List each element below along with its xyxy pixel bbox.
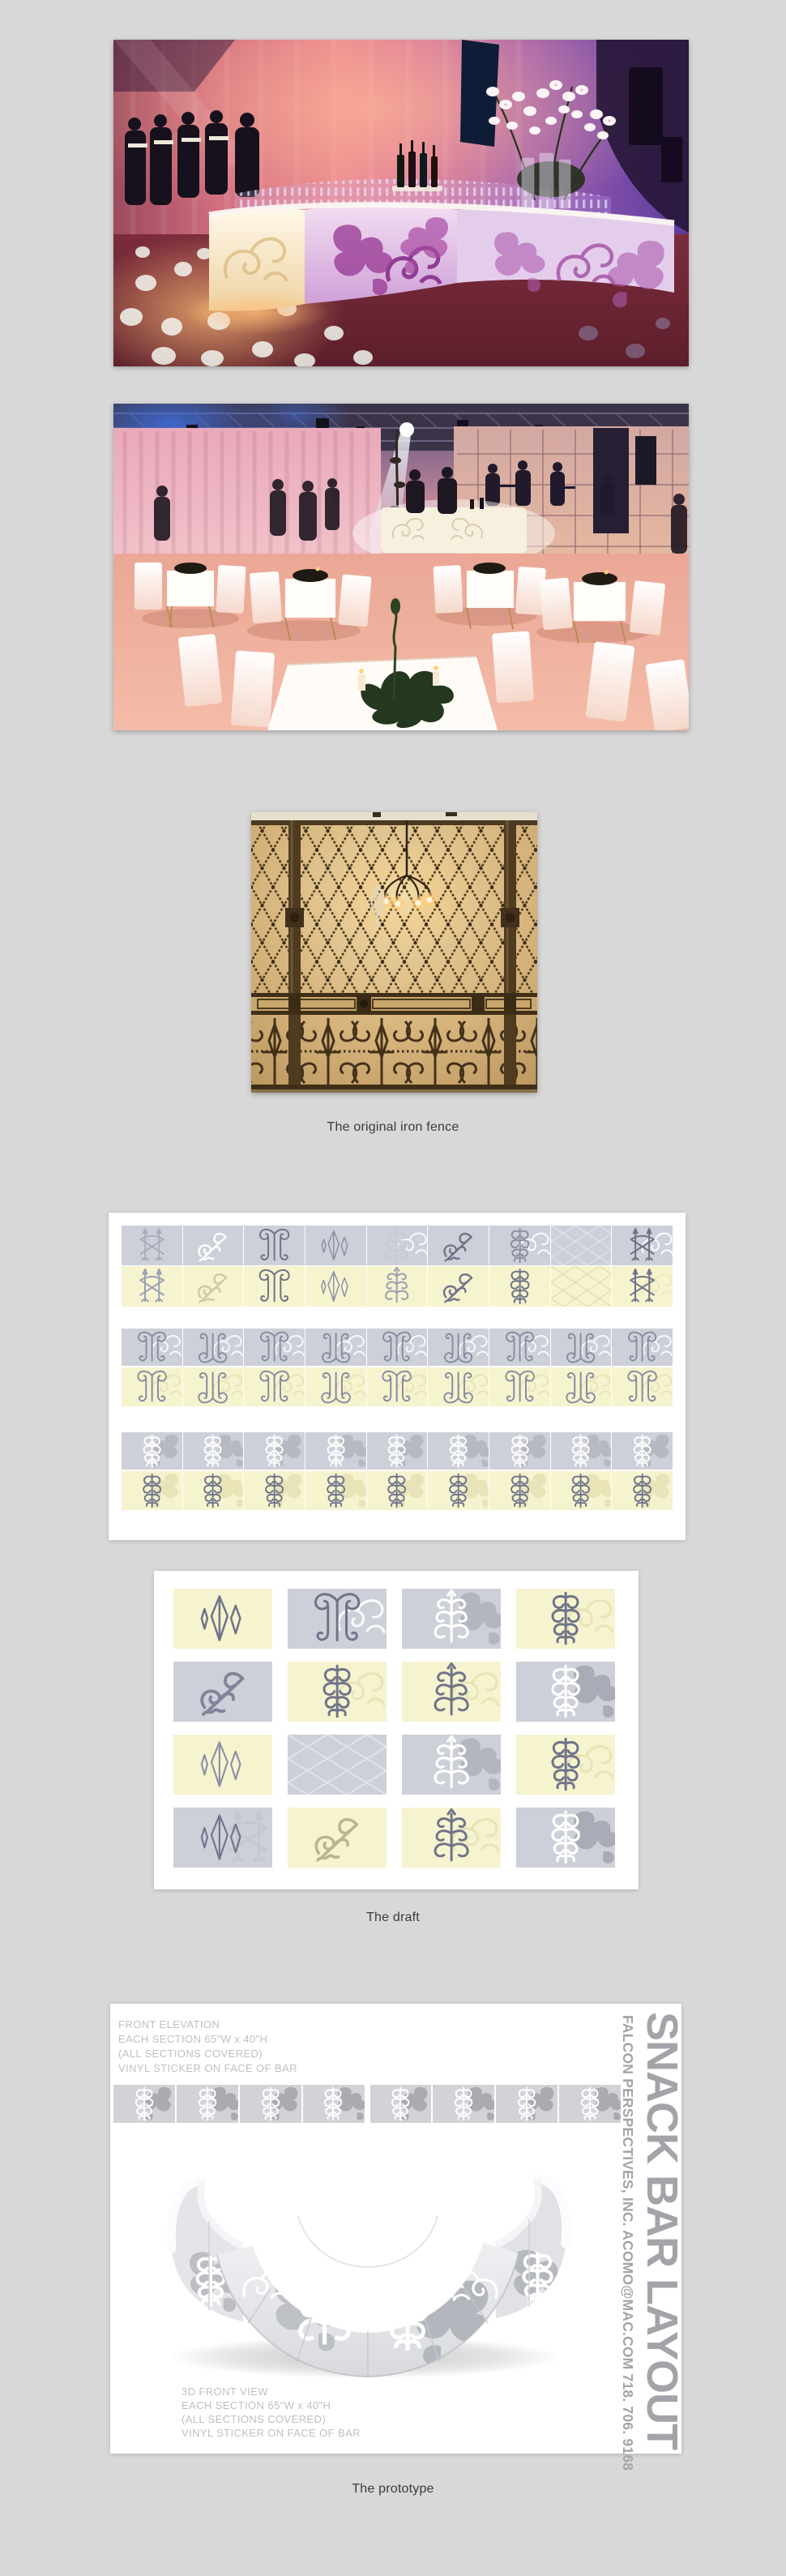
draft-caption: The draft: [0, 1911, 786, 1925]
event-room-photo-art: [113, 404, 689, 730]
note-line: VINYL STICKER ON FACE OF BAR: [118, 2061, 297, 2076]
event-room-photo: [113, 404, 689, 730]
pattern-tile: [122, 1266, 182, 1307]
pattern-tile: [288, 1662, 387, 1722]
pattern-tile: [370, 2085, 432, 2123]
pattern-tile: [305, 1329, 366, 1366]
stage-equipment: [661, 137, 682, 182]
draft-pattern-sheet-rows: [109, 1213, 686, 1540]
pattern-tile: [122, 1329, 182, 1366]
pattern-tile: [173, 1589, 272, 1649]
ground: [251, 1089, 537, 1093]
pattern-tile: [244, 1432, 305, 1470]
pattern-tile: [489, 1471, 550, 1510]
note-line: VINYL STICKER ON FACE OF BAR: [182, 2426, 361, 2440]
pattern-tile: [122, 1432, 182, 1470]
pattern-tile: [612, 1266, 673, 1307]
bar-underglow: [186, 289, 328, 335]
bottom-rail: [251, 1085, 537, 1089]
pattern-tile: [183, 1367, 244, 1406]
pattern-tile: [367, 1367, 428, 1406]
pattern-tile: [428, 1226, 489, 1265]
ceiling-sliver: [251, 812, 537, 820]
pattern-tile: [402, 1808, 501, 1868]
pattern-tile: [516, 1808, 615, 1868]
pattern-tile: [612, 1432, 673, 1470]
pattern-tile: [516, 1662, 615, 1722]
pattern-tile: [367, 1432, 428, 1470]
pattern-tile: [496, 2085, 557, 2123]
pattern-tile: [183, 1266, 244, 1307]
pattern-tile: [551, 1266, 612, 1307]
pattern-row: [122, 1226, 673, 1265]
pattern-tile: [428, 1329, 489, 1366]
pattern-tile: [428, 1432, 489, 1470]
pattern-tile: [183, 1226, 244, 1265]
pattern-row: [122, 1266, 673, 1307]
pattern-tile: [367, 1471, 428, 1510]
pattern-tile: [433, 2085, 494, 2123]
pattern-tile: [612, 1367, 673, 1406]
speaker: [635, 436, 656, 485]
pattern-tile: [551, 1329, 612, 1366]
note-line: 3D FRONT VIEW: [182, 2385, 361, 2398]
event-bar-photo-art: [113, 40, 689, 366]
pattern-tile: [122, 1226, 182, 1265]
pattern-tile: [402, 1589, 501, 1649]
pattern-tile: [428, 1367, 489, 1406]
pattern-tile: [489, 1226, 550, 1265]
left-post-lower: [288, 1015, 301, 1089]
note-line: EACH SECTION 65"W x 40"H: [118, 2032, 297, 2047]
pattern-tile: [612, 1329, 673, 1366]
right-post-lower: [504, 1015, 516, 1089]
pattern-tile: [516, 1589, 615, 1649]
pattern-tile: [612, 1471, 673, 1510]
front-elevation-note: FRONT ELEVATION EACH SECTION 65"W x 40"H…: [118, 2018, 297, 2076]
iron-fence-photo: [251, 812, 537, 1093]
pattern-tile: [489, 1432, 550, 1470]
ceiling-fixture: [446, 812, 457, 816]
pattern-tile: [288, 1808, 387, 1868]
pattern-tile: [551, 1367, 612, 1406]
pattern-tile: [612, 1226, 673, 1265]
pattern-tile: [402, 1735, 501, 1795]
pattern-tile: [305, 1367, 366, 1406]
pattern-tile: [489, 1367, 550, 1406]
ceiling-fixture: [373, 812, 381, 817]
pattern-tile: [113, 2085, 175, 2123]
3d-front-view-note: 3D FRONT VIEW EACH SECTION 65"W x 40"H (…: [182, 2385, 361, 2440]
pattern-tile: [428, 1471, 489, 1510]
pattern-tile: [303, 2085, 365, 2123]
pattern-tile: [173, 1662, 272, 1722]
note-line: EACH SECTION 65"W x 40"H: [182, 2398, 361, 2412]
pattern-tile: [305, 1266, 366, 1307]
pattern-tile: [244, 1226, 305, 1265]
falcon-perspectives-contact: FALCON PERSPECTIVES, INC. ACOMO@MAC.COM …: [621, 2015, 635, 2453]
pattern-tile: [244, 1367, 305, 1406]
note-line: (ALL SECTIONS COVERED): [182, 2412, 361, 2426]
pattern-tile: [173, 1808, 272, 1868]
pattern-tile: [183, 1432, 244, 1470]
pattern-tile: [240, 2085, 301, 2123]
pattern-tile: [551, 1432, 612, 1470]
pattern-tile: [183, 1471, 244, 1510]
fence-caption: The original iron fence: [0, 1120, 786, 1135]
pattern-tile: [288, 1589, 387, 1649]
pattern-row: [122, 1367, 673, 1406]
bar-right-wing: [496, 2179, 566, 2318]
prototype-caption: The prototype: [0, 2482, 786, 2497]
pattern-tile: [551, 1226, 612, 1265]
pattern-tile: [177, 2085, 238, 2123]
pattern-row: [122, 1329, 673, 1366]
pattern-tile: [122, 1367, 182, 1406]
pattern-tile: [559, 2085, 621, 2123]
bar-left-wing: [171, 2180, 243, 2321]
iron-fence-art: [251, 812, 537, 1093]
pattern-tile: [516, 1735, 615, 1795]
snack-bar-layout-sheet: FRONT ELEVATION EACH SECTION 65"W x 40"H…: [110, 2004, 681, 2454]
pattern-tile: [367, 1329, 428, 1366]
note-line: (ALL SECTIONS COVERED): [118, 2047, 297, 2061]
pattern-tile: [122, 1471, 182, 1510]
snack-bar-layout-title: SNACK BAR LAYOUT: [640, 2012, 684, 2454]
pattern-tile: [428, 1266, 489, 1307]
pattern-tile: [489, 1329, 550, 1366]
pattern-tile: [551, 1471, 612, 1510]
draft-pattern-sheet-grid: [154, 1571, 639, 1889]
pattern-tile: [244, 1471, 305, 1510]
pattern-tile: [244, 1329, 305, 1366]
pattern-tile: [288, 1735, 387, 1795]
pattern-tile: [305, 1226, 366, 1265]
stage-equipment: [629, 67, 663, 145]
spotlight-source: [399, 422, 414, 437]
pattern-tile: [183, 1329, 244, 1366]
event-bar-photo: [113, 40, 689, 366]
pattern-tile: [305, 1432, 366, 1470]
portfolio-page: The original iron fence The draft FRONT …: [0, 0, 786, 2576]
pattern-tile: [402, 1662, 501, 1722]
pattern-tile: [244, 1266, 305, 1307]
pattern-row: [122, 1471, 673, 1510]
pattern-tile: [305, 1471, 366, 1510]
front-elevation-strip: [113, 2085, 621, 2123]
pattern-tile: [173, 1735, 272, 1795]
pattern-tile: [489, 1266, 550, 1307]
pattern-row: [122, 1432, 673, 1470]
pattern-tile: [367, 1226, 428, 1265]
middle-rail: [251, 993, 537, 1015]
note-line: FRONT ELEVATION: [118, 2018, 297, 2032]
bar-3d-render: [160, 2171, 577, 2384]
pattern-tile: [367, 1266, 428, 1307]
